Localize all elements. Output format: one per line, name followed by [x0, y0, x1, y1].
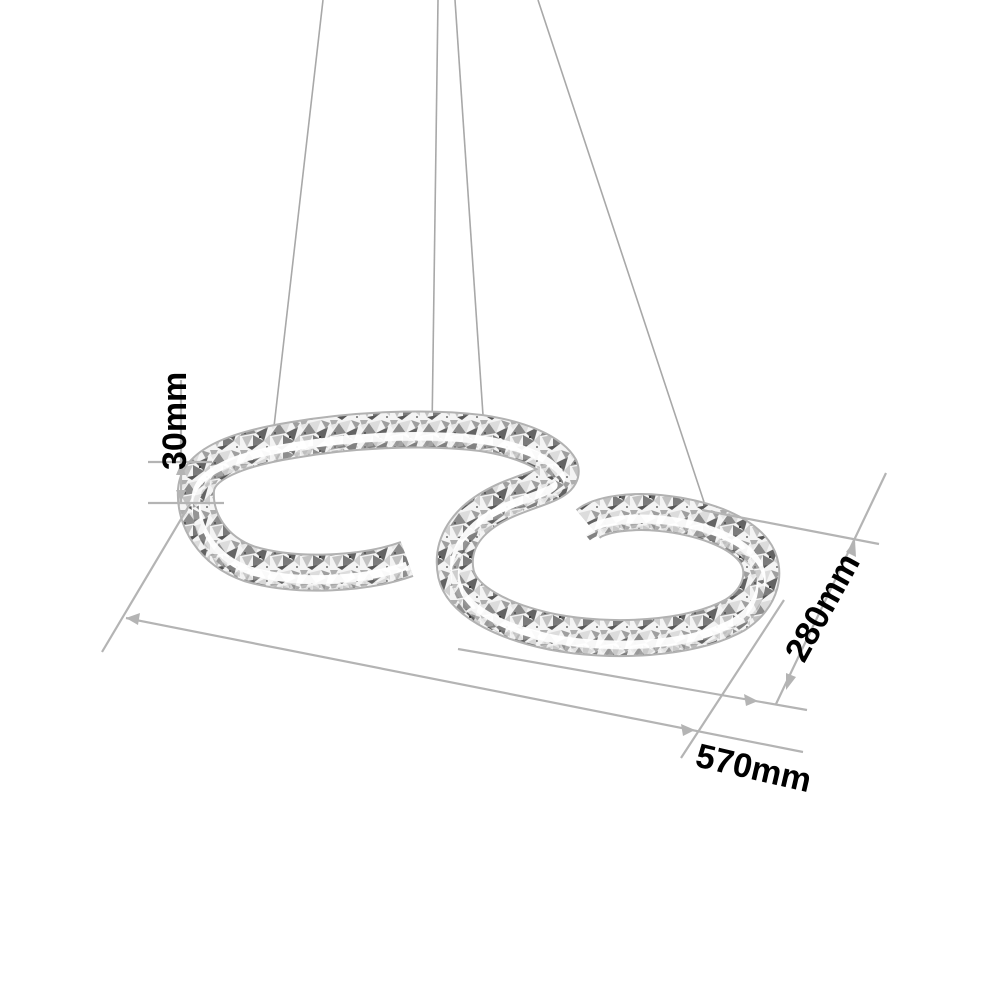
arrowhead-right [681, 724, 695, 736]
band-height-label: 30mm [156, 372, 194, 470]
lamp-body [196, 429, 761, 652]
arrowhead-down-left [786, 673, 796, 690]
fixture-width-label: 570mm [692, 737, 815, 800]
suspension-wire [538, 0, 704, 502]
diagram-canvas: 30mm 570mm 280mm [0, 0, 1000, 1000]
suspension-wire [272, 0, 323, 444]
product-dimension-diagram: 30mm 570mm 280mm [0, 0, 1000, 1000]
extension-line-left [102, 504, 190, 652]
suspension-wire [432, 0, 438, 430]
dimension-fixture-depth: 280mm [776, 473, 886, 704]
arrowhead-left [126, 613, 140, 625]
plane-bottom-arrowhead [744, 694, 758, 706]
suspension-wire [455, 0, 484, 430]
fixture-depth-label: 280mm [778, 547, 868, 668]
